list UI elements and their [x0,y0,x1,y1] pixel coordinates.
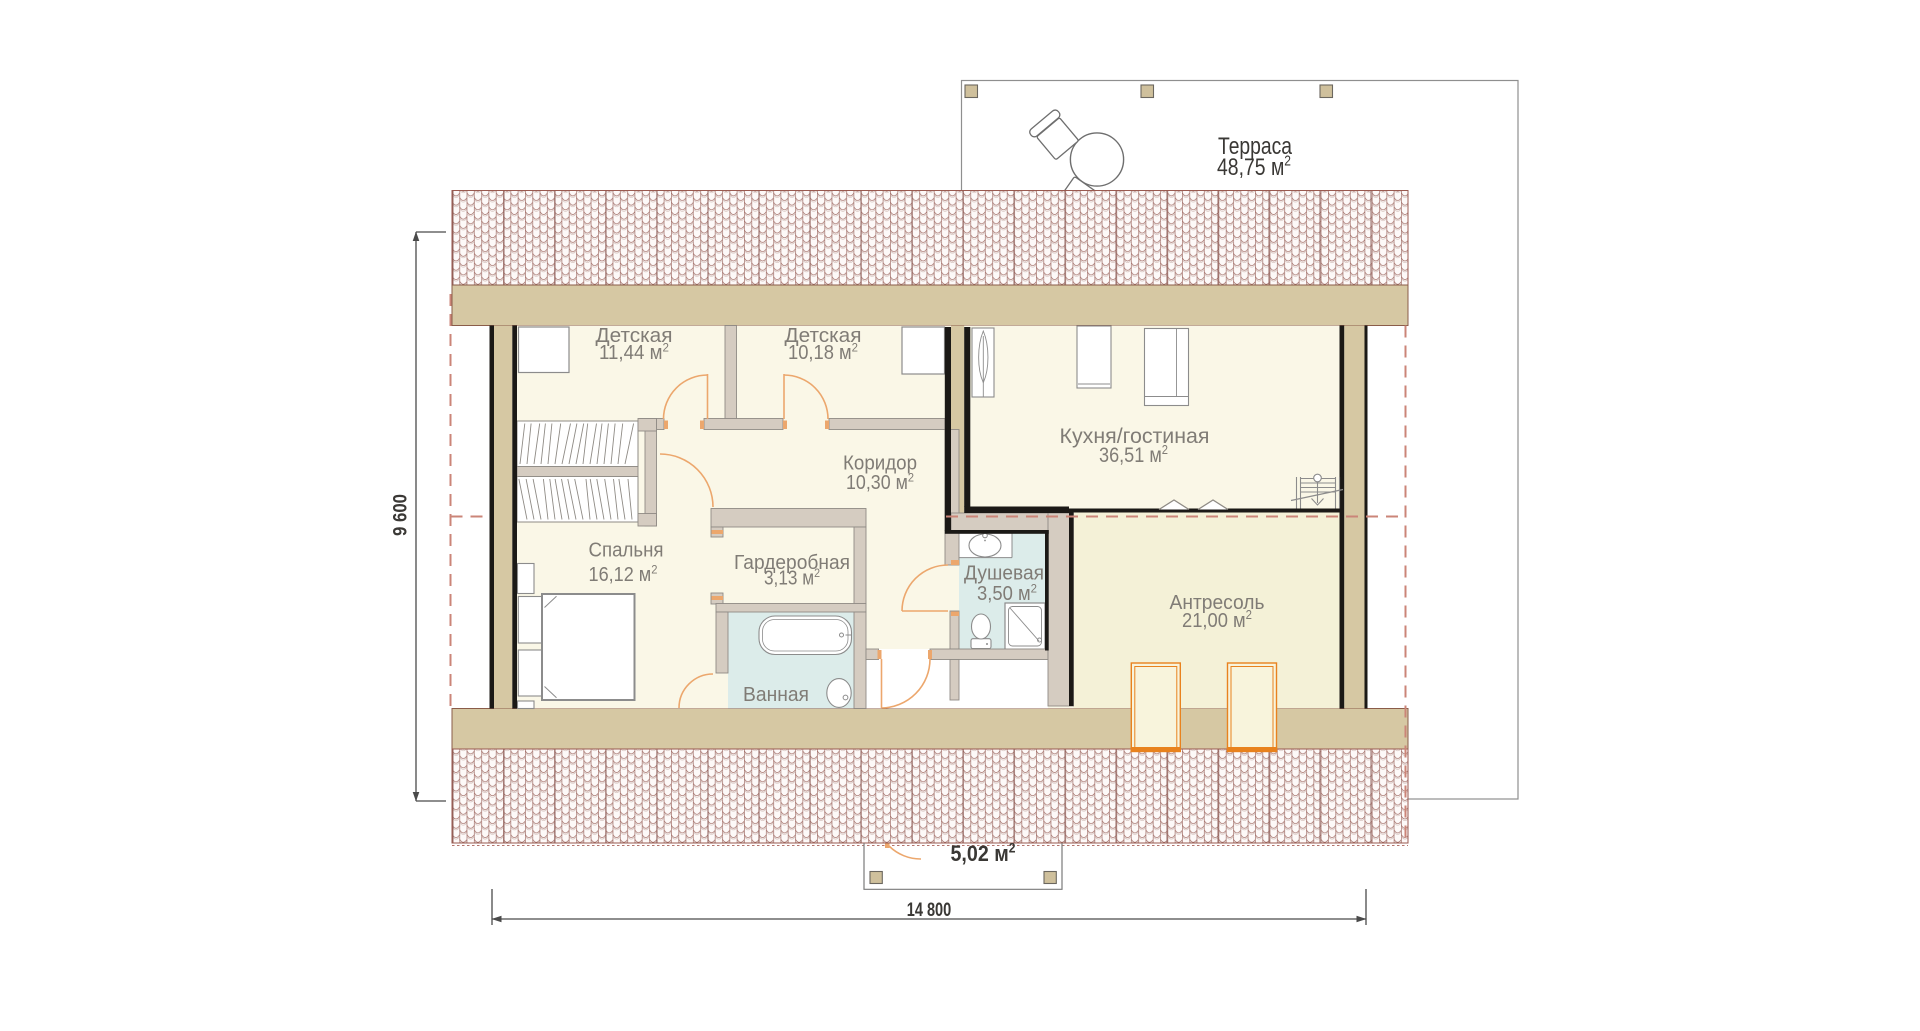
svg-text:21,00 м2: 21,00 м2 [1182,608,1252,632]
svg-text:14 800: 14 800 [907,900,952,921]
svg-text:5,02 м2: 5,02 м2 [951,841,1016,866]
svg-text:48,75 м2: 48,75 м2 [1217,153,1291,181]
svg-text:3,13 м2: 3,13 м2 [764,566,820,590]
svg-text:36,51 м2: 36,51 м2 [1099,442,1168,467]
svg-text:16,12 м2: 16,12 м2 [589,562,658,586]
svg-text:Спальня: Спальня [589,540,664,562]
svg-text:9 600: 9 600 [391,494,412,536]
svg-text:11,44 м2: 11,44 м2 [599,340,669,364]
svg-text:10,18 м2: 10,18 м2 [788,340,858,364]
svg-text:3,50 м2: 3,50 м2 [977,581,1037,605]
svg-text:10,30 м2: 10,30 м2 [846,470,914,494]
svg-text:Ванная: Ванная [743,684,809,706]
